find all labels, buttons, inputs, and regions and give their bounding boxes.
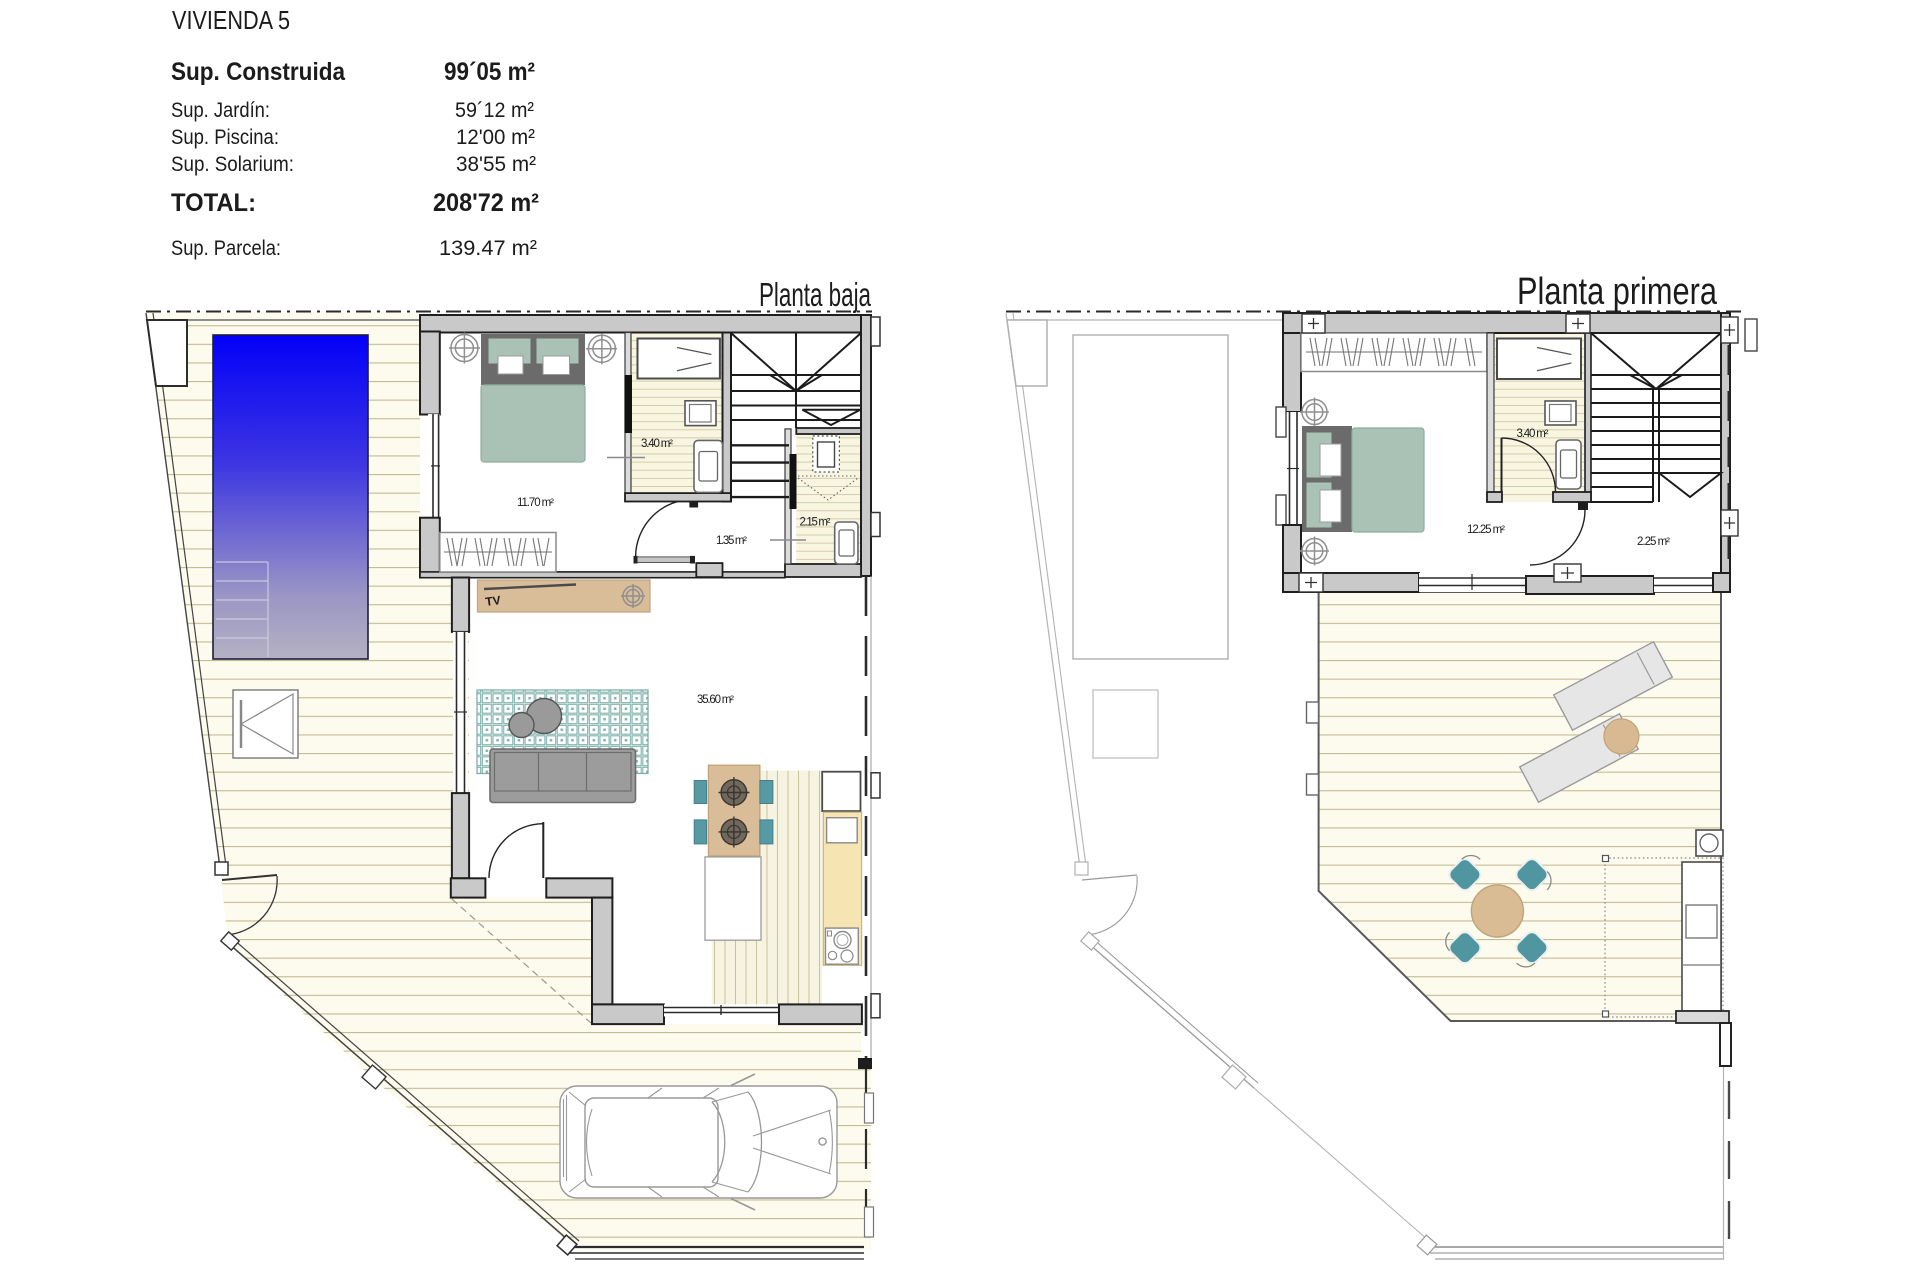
svg-text:Sup. Jardín:: Sup. Jardín:: [171, 99, 270, 122]
svg-text:59´12 m²: 59´12 m²: [455, 99, 534, 122]
svg-text:TV: TV: [484, 593, 501, 609]
svg-text:2.25 m²: 2.25 m²: [1637, 536, 1670, 548]
svg-text:208'72 m²: 208'72 m²: [433, 189, 539, 217]
svg-text:3.40 m²: 3.40 m²: [1517, 428, 1549, 440]
svg-text:99´05 m²: 99´05 m²: [444, 58, 535, 86]
svg-text:12.25 m²: 12.25 m²: [1467, 524, 1505, 536]
svg-text:TOTAL:: TOTAL:: [171, 189, 256, 217]
svg-text:Sup. Construida: Sup. Construida: [171, 58, 346, 86]
svg-text:12'00 m²: 12'00 m²: [456, 126, 535, 149]
svg-text:139.47 m²: 139.47 m²: [439, 237, 537, 260]
svg-text:Sup. Solarium:: Sup. Solarium:: [171, 153, 294, 176]
svg-text:3.40 m²: 3.40 m²: [641, 438, 673, 450]
svg-text:VIVIENDA 5: VIVIENDA 5: [172, 5, 290, 35]
svg-text:Sup. Piscina:: Sup. Piscina:: [171, 126, 279, 149]
svg-text:2.15 m²: 2.15 m²: [800, 517, 831, 529]
svg-text:Sup. Parcela:: Sup. Parcela:: [171, 237, 281, 260]
svg-text:11.70 m²: 11.70 m²: [517, 497, 554, 509]
svg-text:38'55 m²: 38'55 m²: [456, 153, 536, 176]
svg-text:Planta baja: Planta baja: [759, 276, 871, 313]
svg-text:Planta primera: Planta primera: [1517, 271, 1718, 313]
svg-text:1.35 m²: 1.35 m²: [716, 535, 747, 547]
svg-text:35.60 m²: 35.60 m²: [697, 694, 734, 706]
